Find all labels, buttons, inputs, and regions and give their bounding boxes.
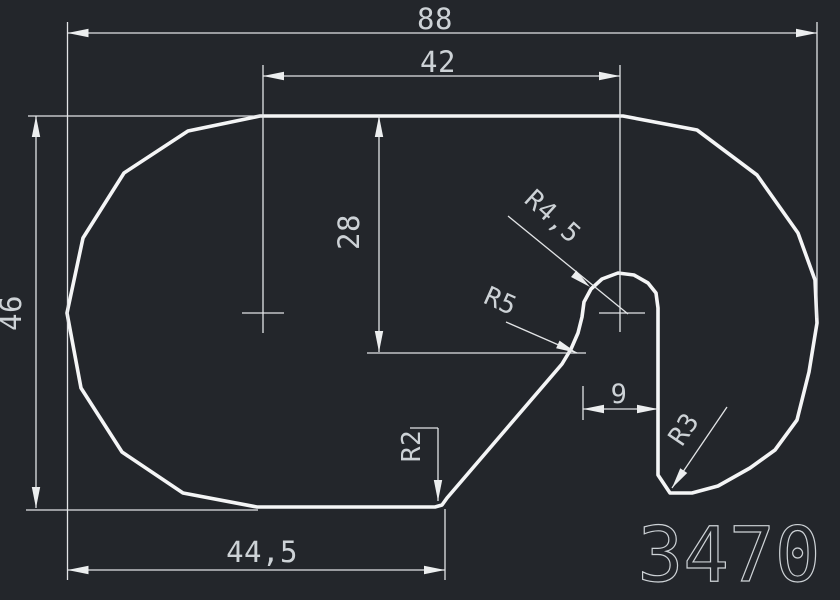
dim-text-slot-depth: 28 [332, 214, 366, 250]
arrowhead [375, 331, 383, 352]
part-profile-path [67, 116, 817, 507]
arrowhead [599, 72, 620, 80]
radius-callout-knob: R4,5 [508, 184, 628, 314]
radius-callout-notch: R3 [663, 407, 727, 490]
dimension-slot-depth: 28 [332, 116, 383, 352]
cad-drawing-canvas: 88 42 46 28 44,5 9 R4,5 [0, 0, 840, 600]
cad-drawing: 88 42 46 28 44,5 9 R4,5 [0, 0, 840, 600]
dimension-slot-width: 9 [583, 379, 658, 413]
dim-text-overall-height: 46 [0, 295, 28, 331]
dim-text-bottom-width: 44,5 [226, 535, 298, 569]
radius-callout-inner: R5 [479, 281, 578, 356]
dim-text-knob-radius: R4,5 [518, 184, 586, 250]
arrowhead [434, 480, 442, 501]
dim-text-inner-radius: R5 [479, 281, 521, 322]
arrowhead [375, 116, 383, 137]
radius-callout-corner: R2 [397, 428, 442, 501]
dim-text-slot-width: 9 [611, 379, 628, 410]
part-number-block: 3470 [637, 510, 820, 599]
dim-text-top-width: 42 [420, 45, 456, 79]
extension-lines [26, 22, 817, 580]
dim-text-overall-width: 88 [417, 2, 453, 36]
dim-text-corner-radius: R2 [397, 430, 427, 462]
dimension-top-width: 42 [263, 45, 620, 80]
dimension-overall-width: 88 [68, 2, 818, 37]
part-number-text: 3470 [637, 510, 820, 599]
arrowhead [424, 566, 445, 574]
dim-text-notch-radius: R3 [663, 408, 706, 452]
arrowhead [32, 116, 40, 137]
arrowhead [32, 487, 40, 508]
arrowhead [637, 405, 658, 413]
arrowhead [263, 72, 284, 80]
profile-outline [67, 116, 817, 507]
arrowhead [669, 468, 688, 490]
arrowhead [583, 405, 604, 413]
arrowhead [796, 29, 817, 37]
arrowhead [571, 271, 593, 291]
dimension-bottom-width: 44,5 [68, 535, 446, 574]
arrowhead [68, 29, 89, 37]
arrowhead [68, 566, 89, 574]
dimension-overall-height: 46 [0, 116, 40, 508]
